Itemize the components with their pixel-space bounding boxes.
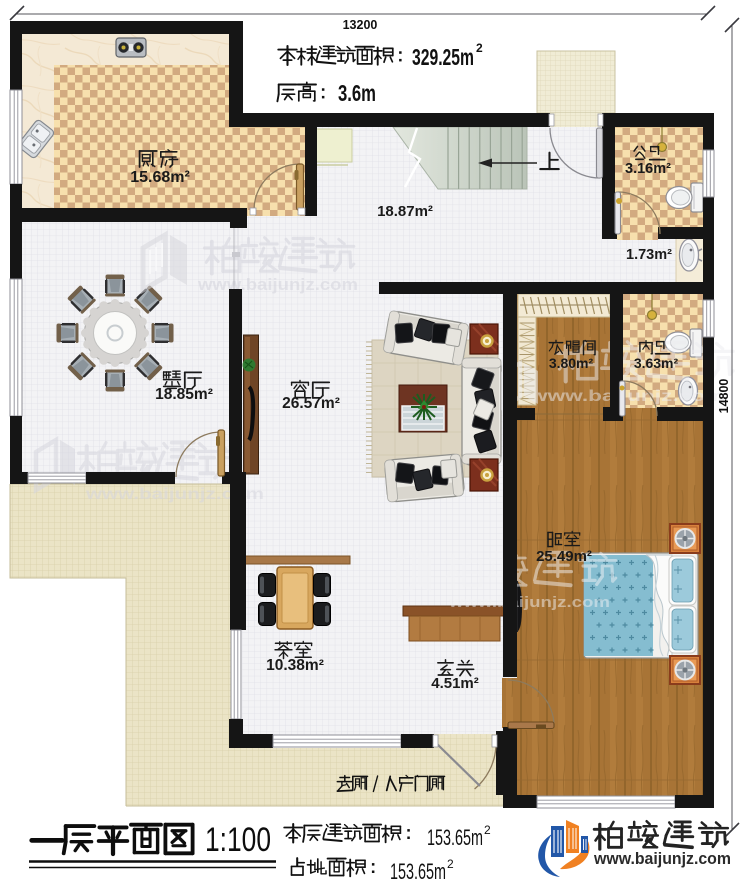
- svg-text:153.65m: 153.65m: [427, 825, 483, 850]
- svg-text:www.baijunjz.com: www.baijunjz.com: [448, 594, 610, 611]
- svg-text:www.baijunjz.com: www.baijunjz.com: [593, 849, 731, 868]
- svg-text:18.87m²: 18.87m²: [377, 203, 433, 220]
- svg-text:2: 2: [476, 41, 483, 55]
- svg-text:10.38m²: 10.38m²: [266, 657, 324, 674]
- svg-text:2: 2: [447, 857, 454, 871]
- svg-text:4.51m²: 4.51m²: [431, 675, 479, 692]
- svg-text:www.baijunjz.com: www.baijunjz.com: [197, 276, 358, 294]
- svg-text:18.85m²: 18.85m²: [155, 386, 213, 403]
- svg-text:14800: 14800: [717, 379, 731, 414]
- svg-text:3.16m²: 3.16m²: [625, 161, 671, 177]
- svg-text:13200: 13200: [343, 18, 378, 32]
- svg-text:329.25m: 329.25m: [412, 44, 474, 70]
- svg-text:153.65m: 153.65m: [390, 859, 446, 884]
- svg-text:1:100: 1:100: [205, 821, 271, 859]
- svg-text:www.baijunjz.com: www.baijunjz.com: [529, 388, 725, 405]
- svg-text:2: 2: [484, 823, 491, 837]
- svg-text:3.80m²: 3.80m²: [549, 355, 594, 371]
- svg-text:15.68m²: 15.68m²: [130, 169, 190, 186]
- svg-text:3.63m²: 3.63m²: [634, 355, 679, 371]
- svg-text:3.6m: 3.6m: [338, 80, 376, 106]
- svg-text:26.57m²: 26.57m²: [282, 395, 340, 412]
- svg-text:25.49m²: 25.49m²: [536, 548, 592, 565]
- svg-text:1.73m²: 1.73m²: [626, 247, 672, 263]
